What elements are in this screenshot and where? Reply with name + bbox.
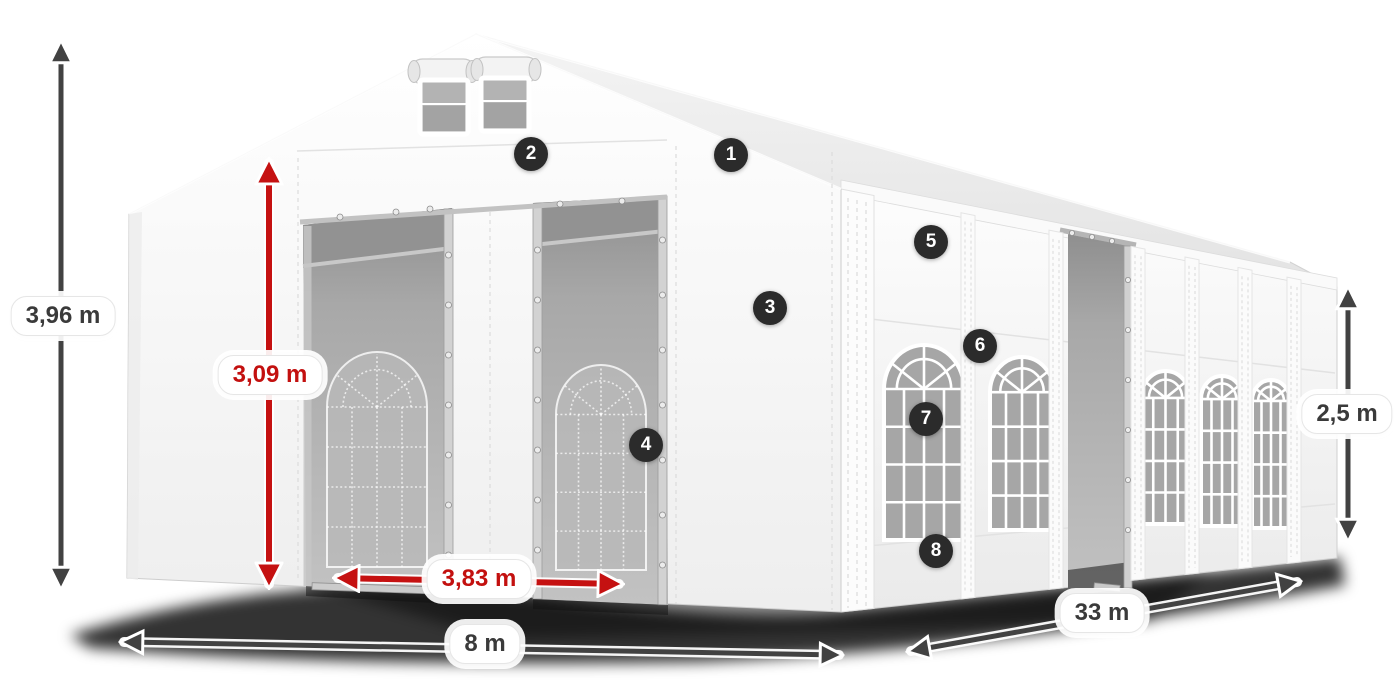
- dimension-label-width: 8 m: [449, 624, 520, 664]
- feature-marker-7: 7: [909, 402, 943, 436]
- feature-marker-2: 2: [514, 137, 548, 171]
- dimension-label-total-height: 3,96 m: [11, 296, 116, 336]
- dimension-label-side-height: 2,5 m: [1301, 394, 1392, 434]
- side-door-opening: [1060, 230, 1136, 596]
- printed-window: [327, 352, 427, 567]
- wall-strap: [1287, 277, 1301, 563]
- printed-window: [556, 365, 646, 570]
- wall-strap: [961, 213, 975, 599]
- feature-marker-6: 6: [963, 329, 997, 363]
- feature-marker-4: 4: [629, 428, 663, 462]
- arched-window: [884, 345, 964, 540]
- frame-pole: [444, 209, 453, 594]
- tent-illustration: [0, 0, 1400, 700]
- wall-strap: [1131, 246, 1145, 580]
- dimension-label-entrance-height: 3,09 m: [218, 355, 323, 395]
- dimension-label-length: 33 m: [1060, 593, 1145, 633]
- feature-marker-3: 3: [753, 291, 787, 325]
- arched-window: [1141, 371, 1190, 524]
- feature-marker-5: 5: [914, 225, 948, 259]
- arched-window: [1252, 380, 1290, 528]
- feature-marker-8: 8: [919, 534, 953, 568]
- tent-dimensions-diagram: 3,96 m 3,09 m 3,83 m 8 m 33 m 2,5 m 1 2 …: [0, 0, 1400, 700]
- front-door-opening-right: [533, 196, 668, 615]
- arched-window: [990, 357, 1054, 530]
- frame-pole: [658, 196, 667, 605]
- dimension-label-entrance-width: 3,83 m: [427, 559, 532, 599]
- gable-vent-left: [420, 80, 468, 134]
- gable-vent-right: [481, 78, 529, 131]
- wall-strap: [1185, 257, 1199, 575]
- frame-pole: [304, 226, 312, 586]
- front-door-opening-left: [303, 208, 453, 604]
- wall-strap: [1238, 267, 1252, 568]
- feature-marker-1: 1: [714, 138, 748, 172]
- corner-strap: [841, 189, 874, 612]
- wall-strap: [1049, 230, 1063, 589]
- arched-window: [1201, 376, 1243, 526]
